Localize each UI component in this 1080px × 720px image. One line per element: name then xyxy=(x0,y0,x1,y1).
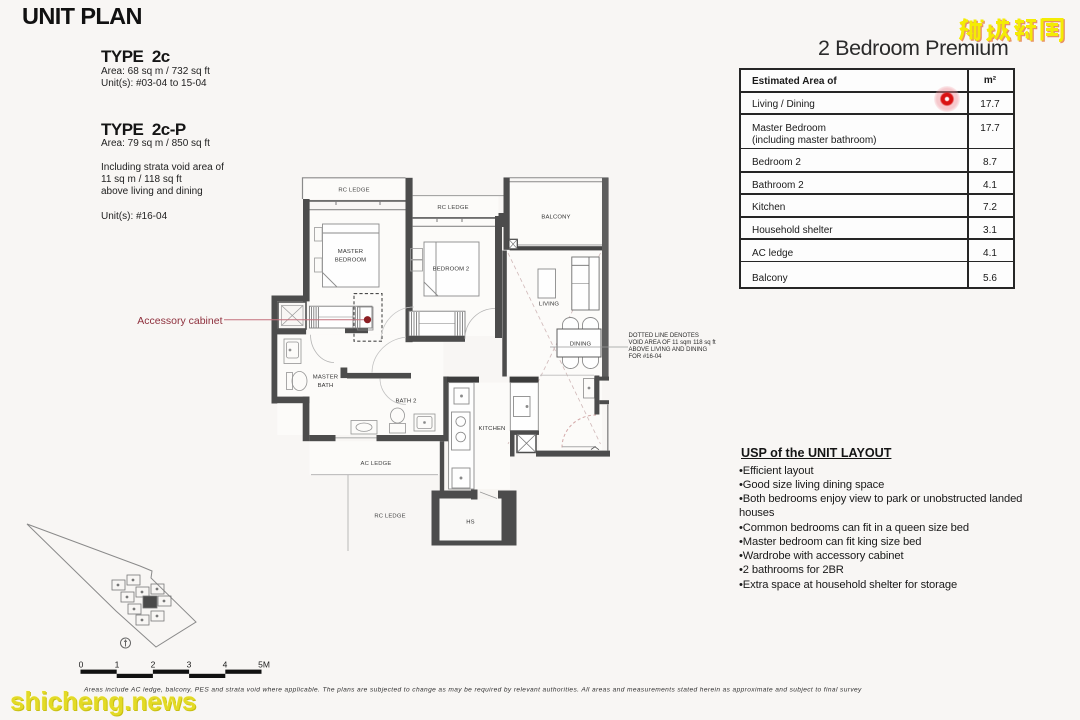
svg-text:KITCHEN: KITCHEN xyxy=(479,426,506,432)
svg-text:BALCONY: BALCONY xyxy=(541,215,570,221)
svg-text:5M: 5M xyxy=(258,660,270,670)
svg-text:Areas include AC ledge, balcon: Areas include AC ledge, balcony, PES and… xyxy=(83,687,862,694)
svg-text:AC LEDGE: AC LEDGE xyxy=(361,461,392,467)
svg-text:DINING: DINING xyxy=(570,342,592,348)
svg-text:2: 2 xyxy=(151,660,156,670)
svg-text:4: 4 xyxy=(223,660,228,670)
svg-text:LIVING: LIVING xyxy=(539,302,559,308)
svg-text:HS: HS xyxy=(466,520,474,526)
svg-text:BATH: BATH xyxy=(318,383,334,389)
svg-text:BEDROOM 2: BEDROOM 2 xyxy=(433,267,470,273)
svg-text:Accessory cabinet: Accessory cabinet xyxy=(137,315,222,327)
svg-text:VOID AREA OF 11 sqm 118 sq ft: VOID AREA OF 11 sqm 118 sq ft xyxy=(629,340,716,346)
svg-text:RC LEDGE: RC LEDGE xyxy=(338,188,369,194)
svg-text:MASTER: MASTER xyxy=(338,249,363,255)
svg-text:3: 3 xyxy=(187,660,192,670)
svg-text:BEDROOM: BEDROOM xyxy=(335,258,367,264)
svg-text:RC LEDGE: RC LEDGE xyxy=(437,205,468,211)
svg-text:0: 0 xyxy=(79,660,84,670)
svg-text:ABOVE LIVING AND DINING: ABOVE LIVING AND DINING xyxy=(629,347,708,353)
svg-text:RC LEDGE: RC LEDGE xyxy=(374,514,405,520)
svg-text:1: 1 xyxy=(115,660,120,670)
svg-text:MASTER: MASTER xyxy=(313,375,338,381)
svg-text:FOR #16-04: FOR #16-04 xyxy=(629,354,663,360)
svg-text:DOTTED LINE DENOTES: DOTTED LINE DENOTES xyxy=(629,333,699,339)
